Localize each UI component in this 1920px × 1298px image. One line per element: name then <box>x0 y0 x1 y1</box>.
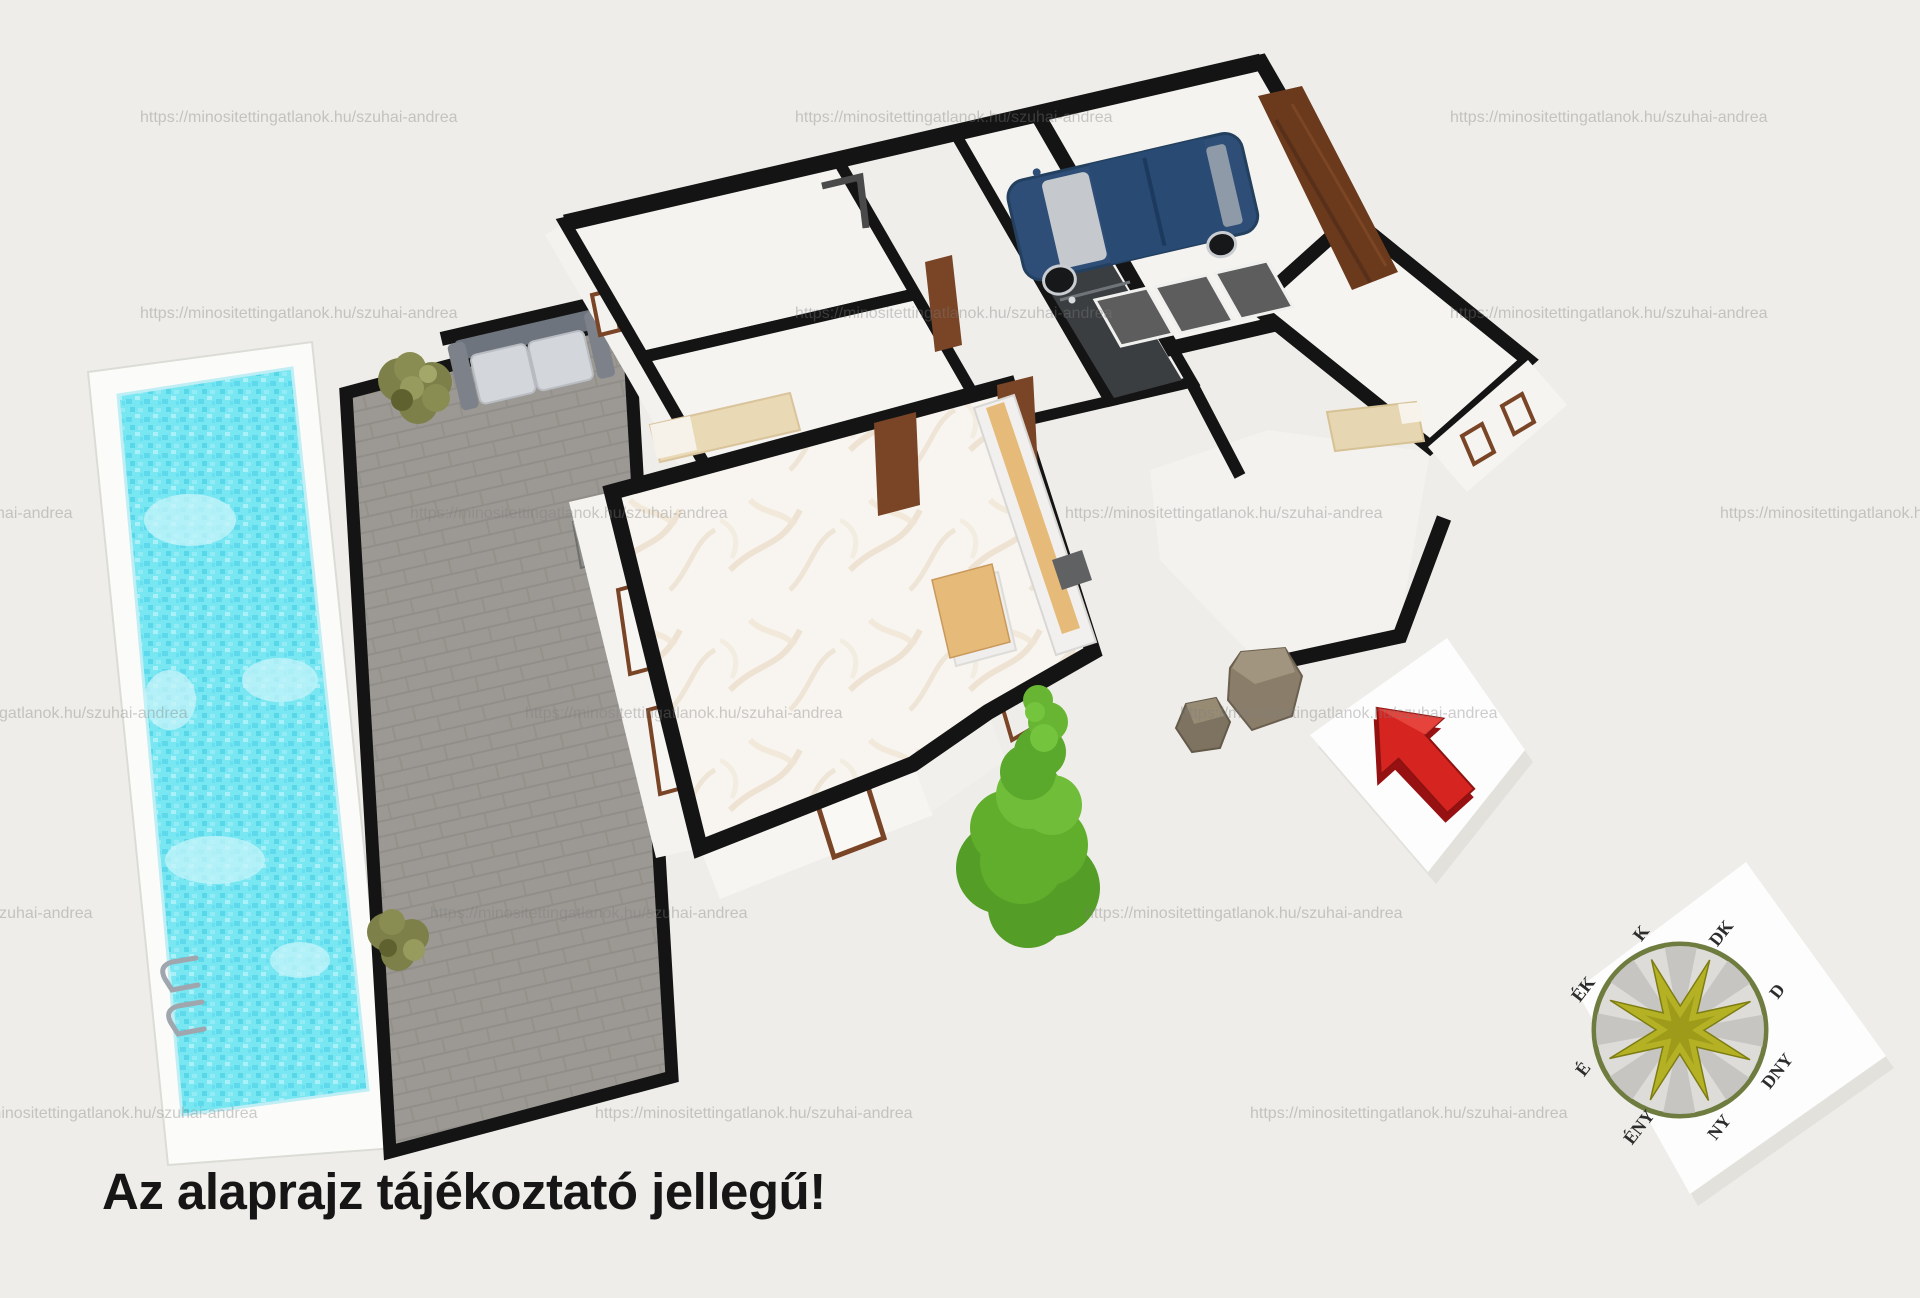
caption-text: Az alaprajz tájékoztató jellegű! <box>102 1162 826 1221</box>
watermark-text: https://minositettingatlanok.hu/szuhai-a… <box>1180 705 1498 722</box>
watermark-text: https://minositettingatlanok.hu/szuhai-a… <box>795 109 1113 126</box>
watermark-text: https://minositettingatlanok.hu/szuhai-a… <box>595 1105 913 1122</box>
compass-card: K DK D DNY NY ÉNY É ÉK <box>1566 862 1894 1206</box>
watermark-text: https://minositettingatlanok.hu/szuhai-a… <box>140 109 458 126</box>
watermark-text: https://minositettingatlanok.hu/szuhai-a… <box>1450 305 1768 322</box>
floor-plan-canvas: K DK D DNY NY ÉNY É ÉK https://minositet… <box>0 0 1920 1298</box>
watermark-text: https://minositettingatlanok.hu/szuhai-a… <box>0 905 93 922</box>
watermark-text: https://minositettingatlanok.hu/szuhai-a… <box>140 305 458 322</box>
bed <box>1327 402 1424 451</box>
terrace <box>346 295 672 1152</box>
watermark-text: https://minositettingatlanok.hu/szuhai-a… <box>1065 505 1383 522</box>
watermark-text: https://minositettingatlanok.hu/szuhai-a… <box>410 505 728 522</box>
watermark-text: https://minositettingatlanok.hu/szuhai-a… <box>525 705 843 722</box>
watermark-text: https://minositettingatlanok.hu/szuhai-a… <box>1250 1105 1568 1122</box>
terrace-paving <box>346 318 672 1152</box>
rocks <box>1176 648 1302 752</box>
watermark-text: https://minositettingatlanok.hu/szuhai-a… <box>1720 505 1920 522</box>
watermark-text: https://minositettingatlanok.hu/szuhai-a… <box>0 705 188 722</box>
floor-plan-render: K DK D DNY NY ÉNY É ÉK https://minositet… <box>0 0 1920 1298</box>
compass-rose-icon <box>1594 944 1766 1116</box>
watermark-text: https://minositettingatlanok.hu/szuhai-a… <box>1085 905 1403 922</box>
watermark-text: https://minositettingatlanok.hu/szuhai-a… <box>0 505 73 522</box>
watermark-text: https://minositettingatlanok.hu/szuhai-a… <box>1450 109 1768 126</box>
watermark-text: https://minositettingatlanok.hu/szuhai-a… <box>0 1105 258 1122</box>
compass-label-e: É <box>1571 1057 1595 1079</box>
watermark-text: https://minositettingatlanok.hu/szuhai-a… <box>795 305 1113 322</box>
north-arrow-card <box>1310 638 1533 884</box>
watermark-text: https://minositettingatlanok.hu/szuhai-a… <box>430 905 748 922</box>
door <box>874 412 920 516</box>
entrance-porch <box>1150 430 1430 666</box>
